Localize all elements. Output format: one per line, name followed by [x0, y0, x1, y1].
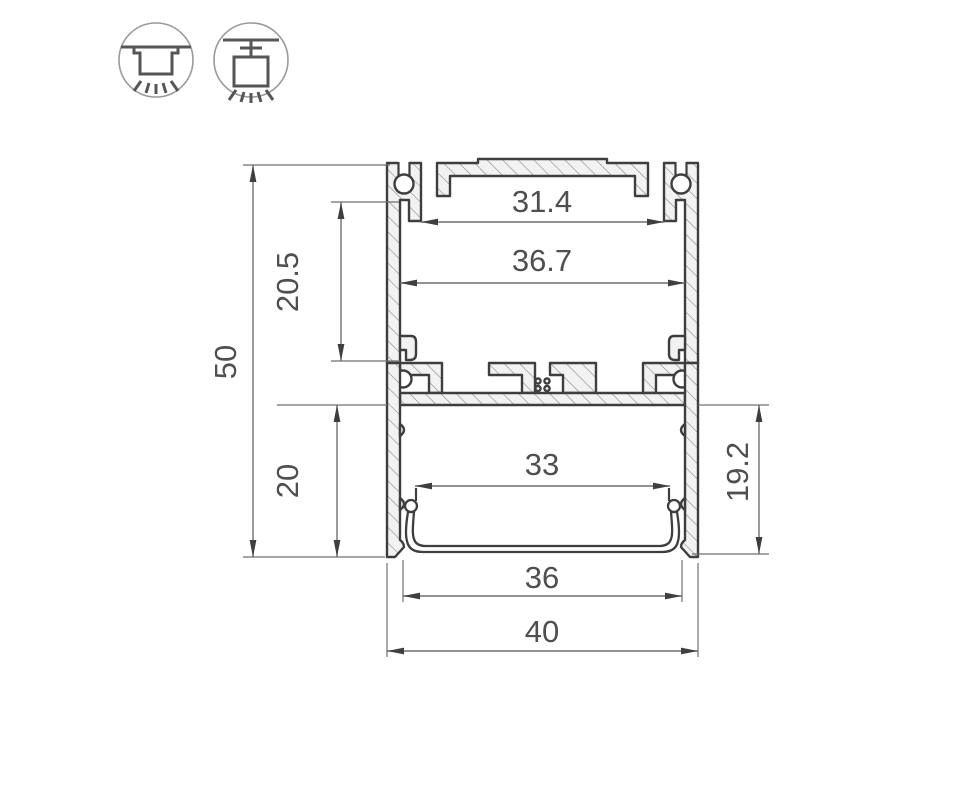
profile-drawing-svg: 31.4 36.7 20.5 50	[0, 0, 978, 800]
dim-inner-width-bottom: 36	[403, 560, 682, 602]
right-diffuser-clip	[668, 500, 680, 512]
right-clip-bump-upper	[681, 424, 685, 436]
left-diffuser-clip	[405, 500, 417, 512]
dim-upper-chamber-height: 20.5	[270, 202, 400, 361]
screw-rib	[535, 386, 540, 391]
profile-body	[134, 47, 178, 74]
dim-lower-chamber-height: 20	[270, 405, 387, 557]
left-clip-bump-lower	[400, 498, 404, 510]
surface-mount-icon	[119, 23, 193, 97]
diffuser	[405, 488, 680, 552]
divider-plate	[400, 393, 685, 405]
dim-label-inner-width-top: 36.7	[512, 243, 572, 278]
dim-label-diffuser-width: 33	[525, 447, 559, 482]
light-rays	[229, 90, 273, 103]
divider-center-left-prong	[489, 363, 535, 393]
dim-top-slot-width: 31.4	[421, 184, 664, 225]
right-clip-bump-lower	[681, 498, 685, 510]
drawing-canvas: 31.4 36.7 20.5 50	[0, 0, 978, 800]
dim-inner-height-lower: 19.2	[692, 405, 769, 554]
left-screw-channel	[395, 175, 414, 194]
dim-diffuser-width: 33	[415, 447, 670, 489]
right-wall-hook	[669, 336, 685, 360]
screw-rib	[544, 378, 549, 383]
profile-body	[234, 57, 268, 86]
dim-label-inner-width-bottom: 36	[525, 560, 559, 595]
dim-inner-width-top: 36.7	[400, 243, 685, 286]
dim-label-lower-chamber-height: 20	[270, 464, 305, 498]
left-clip-bump-upper	[400, 424, 404, 436]
dim-label-overall-width: 40	[525, 614, 559, 649]
pendant-mount-icon	[214, 23, 288, 103]
dim-label-upper-chamber-height: 20.5	[270, 252, 305, 312]
divider-center-right-prong	[550, 363, 596, 393]
light-rays	[134, 81, 178, 94]
mount-icons	[119, 23, 288, 103]
screw-rib	[535, 378, 540, 383]
dim-label-top-slot-width: 31.4	[512, 184, 572, 219]
diffuser-cover	[406, 512, 679, 552]
screw-rib	[544, 386, 549, 391]
dim-label-inner-height-lower: 19.2	[720, 442, 755, 502]
right-screw-channel	[672, 175, 691, 194]
dim-label-overall-height: 50	[208, 345, 243, 379]
left-wall-hook	[400, 336, 416, 360]
